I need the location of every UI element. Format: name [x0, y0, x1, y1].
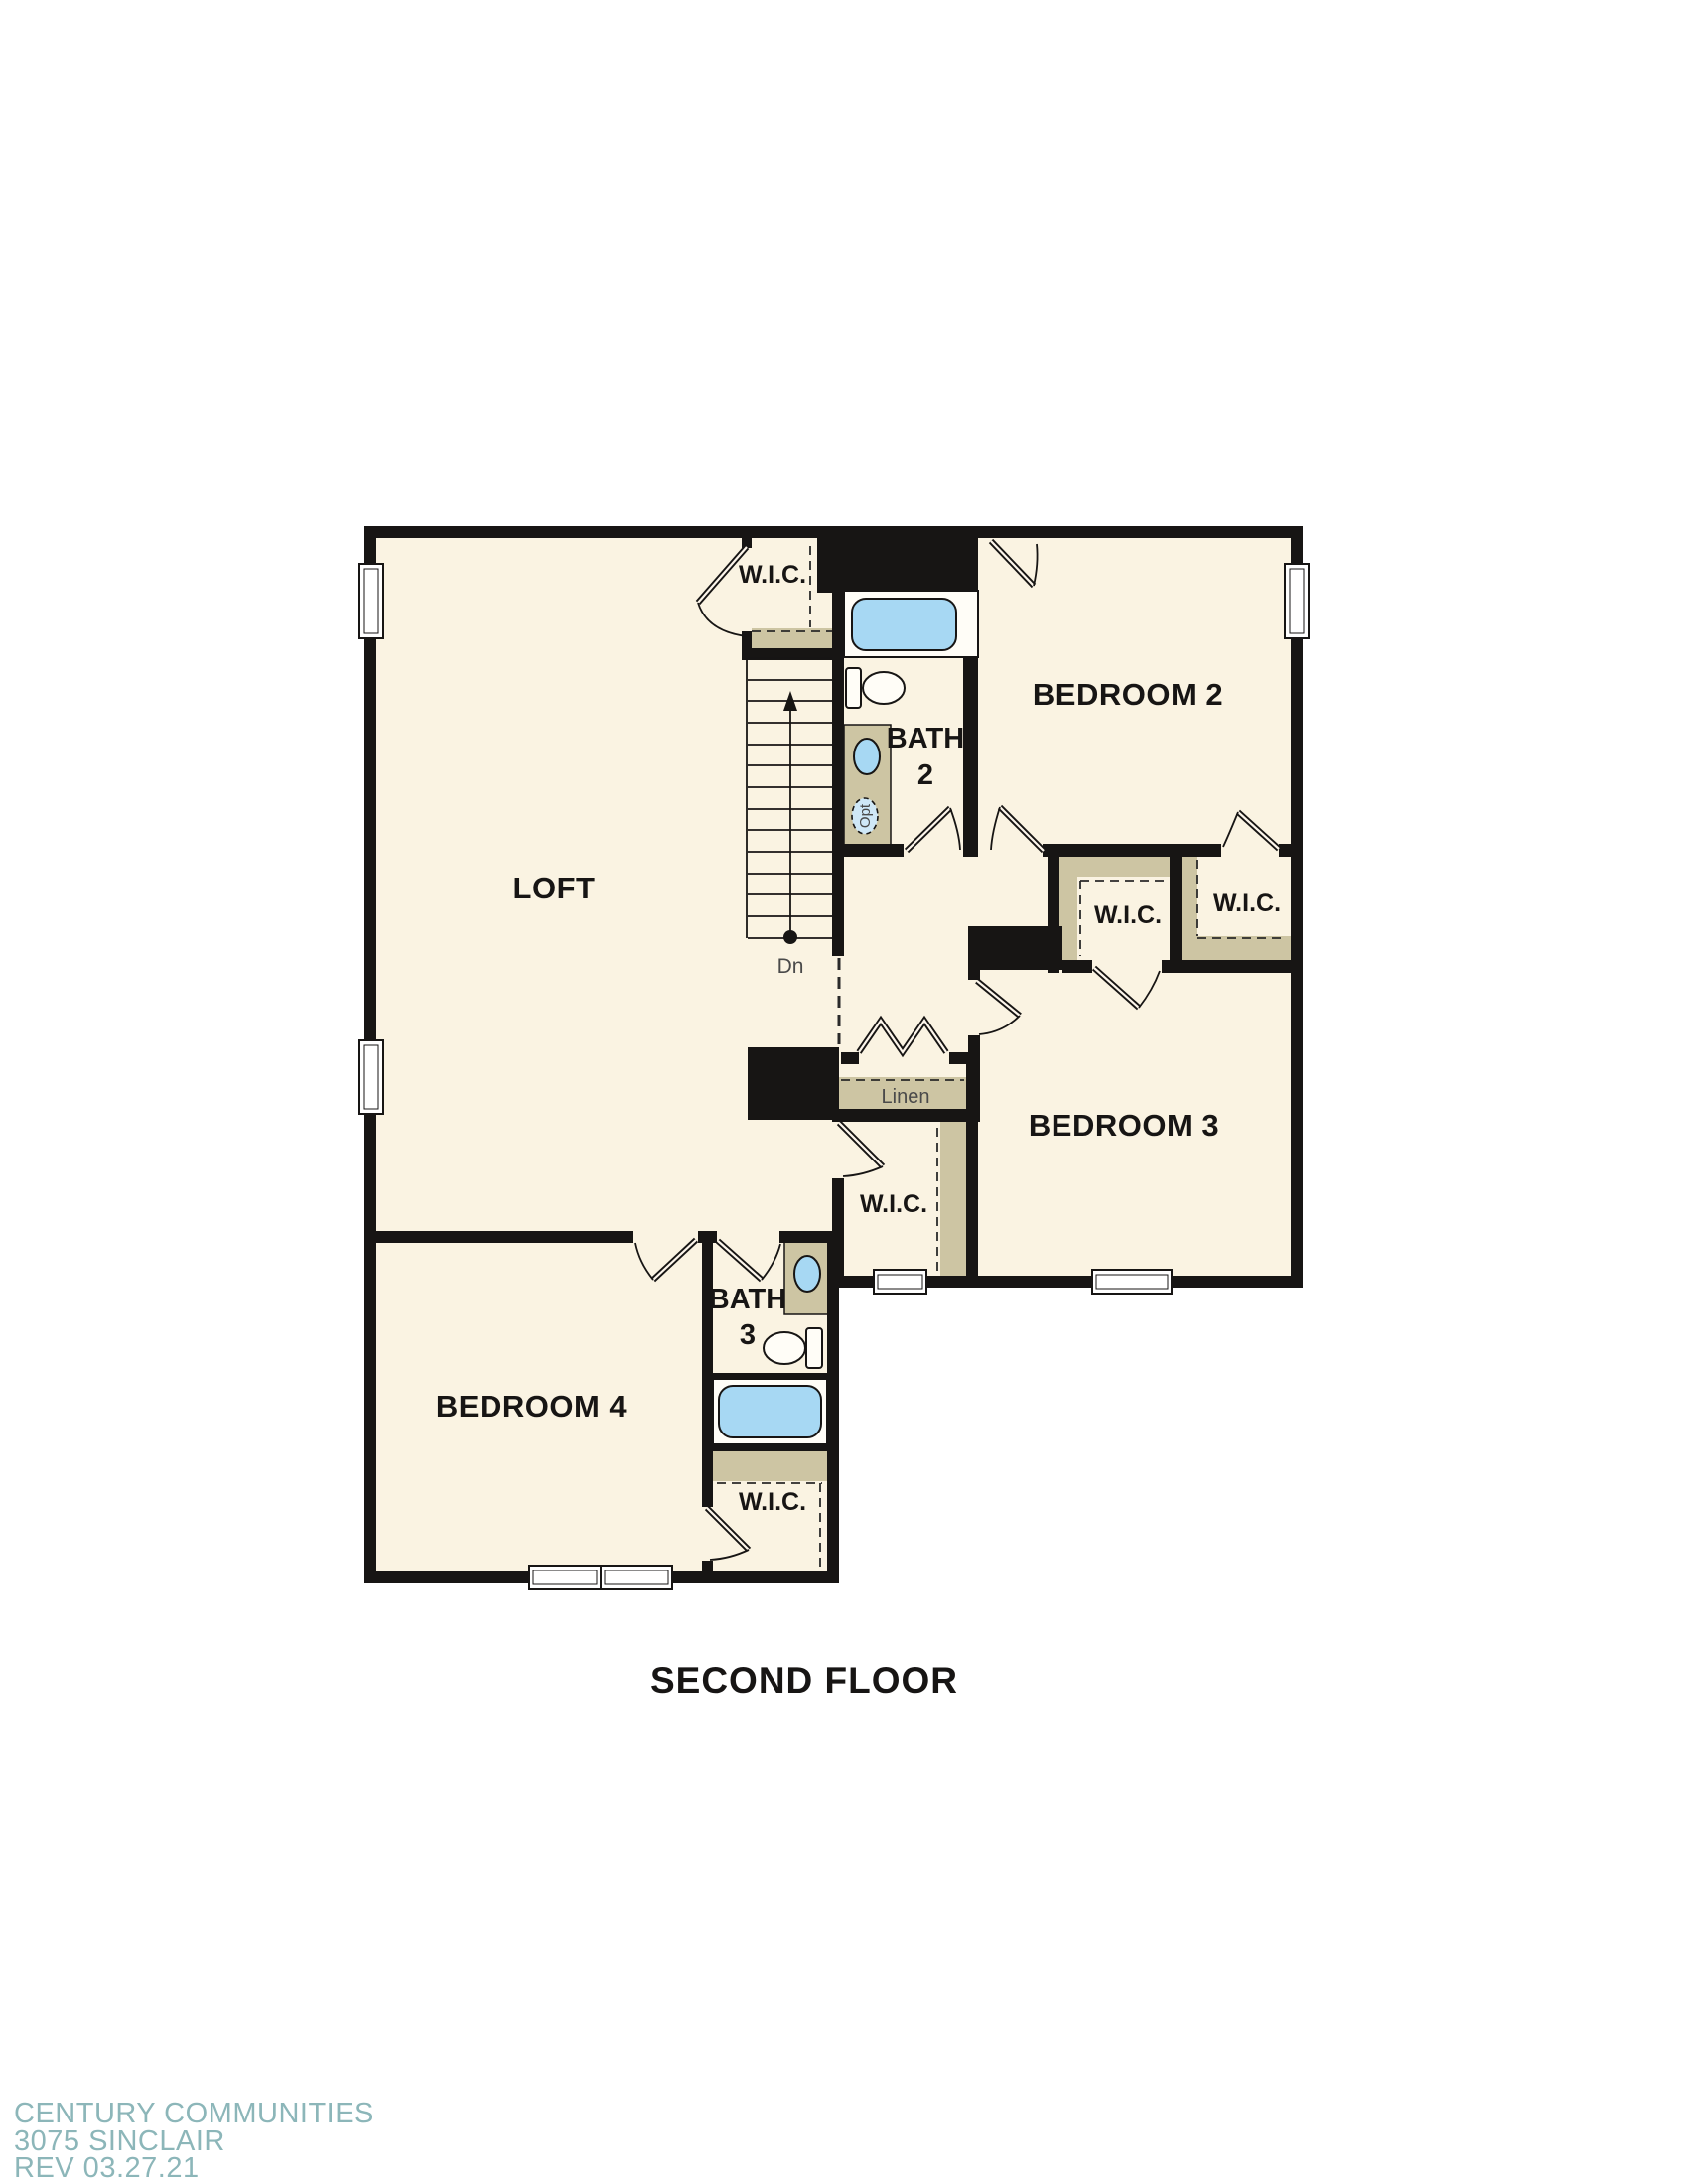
wall — [966, 1122, 978, 1278]
stair-start-dot — [783, 930, 797, 944]
window — [359, 564, 383, 638]
shelf-bottom-wic — [713, 1451, 827, 1481]
window — [359, 1040, 383, 1114]
toilet-tank — [846, 668, 861, 708]
bath2-label-line1: BATH — [887, 723, 964, 754]
revision-date: REV 03.27.21 — [14, 2152, 200, 2184]
toilet-bowl — [863, 672, 905, 704]
floor-plan-canvas: LOFT BEDROOM 2 BEDROOM 3 BEDROOM 4 BATH … — [0, 0, 1688, 2184]
bath3-label-line1: BATH — [709, 1284, 786, 1315]
window — [1285, 564, 1309, 638]
window — [874, 1270, 926, 1294]
optional-sink-label: Opt — [857, 803, 874, 828]
shelf-right-wic-bottom — [1182, 936, 1291, 962]
wall — [963, 844, 978, 857]
loft-label: LOFT — [513, 871, 596, 905]
bedroom3-label: BEDROOM 3 — [1029, 1108, 1219, 1143]
window — [1092, 1270, 1172, 1294]
toilet-tank — [806, 1328, 822, 1368]
wall — [1170, 857, 1182, 973]
wall — [1043, 844, 1221, 857]
bedroom2-label: BEDROOM 2 — [1033, 677, 1223, 712]
title-block: CENTURY COMMUNITIES 3075 SINCLAIR REV 03… — [14, 2098, 374, 2184]
toilet-bowl — [764, 1332, 805, 1364]
wall — [968, 970, 980, 980]
wall — [832, 526, 844, 956]
wall — [827, 1231, 839, 1583]
wic-right-label: W.I.C. — [1213, 889, 1281, 917]
wall — [1062, 960, 1092, 973]
shelf-mid-wic — [940, 1122, 966, 1278]
wall — [702, 1231, 713, 1507]
wic-left-label: W.I.C. — [1094, 901, 1162, 929]
wall — [832, 1109, 978, 1122]
wall — [779, 1231, 839, 1243]
bath3-label-line2: 3 — [740, 1319, 756, 1351]
wic-top-label: W.I.C. — [739, 561, 806, 589]
bathtub — [719, 1386, 821, 1437]
shelf-top-wic — [752, 628, 834, 649]
bedroom4-label: BEDROOM 4 — [436, 1389, 628, 1424]
corner-block — [968, 926, 1062, 970]
wall — [1182, 960, 1291, 973]
sink — [794, 1256, 820, 1292]
sink — [854, 739, 880, 774]
window-double — [529, 1566, 672, 1589]
bath2-label-line2: 2 — [917, 759, 933, 791]
void-beside-linen — [748, 1047, 839, 1120]
wic-bottom-label: W.I.C. — [739, 1488, 806, 1516]
wall — [1291, 526, 1303, 1288]
wall — [1279, 844, 1303, 857]
stairs-down-label: Dn — [777, 955, 804, 978]
bathtub — [852, 599, 956, 650]
linen-label: Linen — [882, 1086, 930, 1108]
wall — [839, 844, 904, 857]
wall — [832, 1178, 844, 1278]
drawing-title: SECOND FLOOR — [650, 1660, 958, 1701]
wall — [1162, 960, 1182, 973]
wall — [702, 1561, 713, 1583]
wic-mid-label: W.I.C. — [860, 1190, 927, 1218]
wall — [364, 1231, 633, 1243]
shelf-left-wic-top — [1059, 857, 1170, 877]
wall — [841, 1052, 859, 1064]
